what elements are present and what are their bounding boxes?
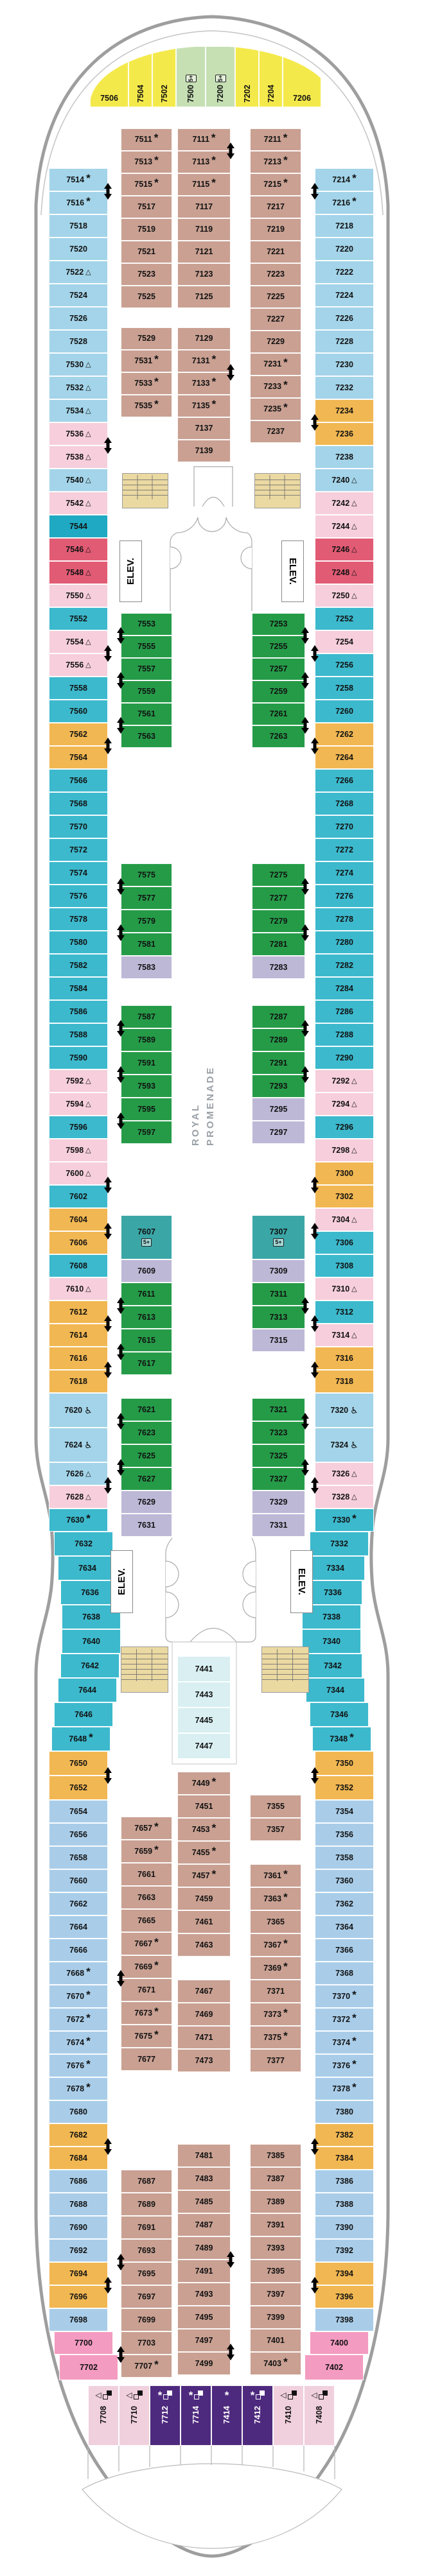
updown-arrow-icon [311, 1315, 319, 1332]
cabin-7214: 7214* [315, 168, 374, 191]
cabin-number: 7294 [331, 1100, 349, 1109]
cabin-number: 7536 [66, 430, 84, 438]
cabin-7690: 7690 [49, 2216, 108, 2239]
asterisk-icon: * [283, 402, 288, 413]
cabin-7412: *7412 [242, 2385, 273, 2446]
cabin-number: 7447 [195, 1742, 213, 1750]
updown-arrow-icon [301, 1459, 309, 1476]
cabin-7556: 7556△ [49, 653, 108, 677]
cabin-7264: 7264 [315, 746, 374, 769]
cabin-number: 7614 [69, 1331, 87, 1340]
triangle-icon: △ [85, 1170, 91, 1177]
cabin-number: 7117 [195, 203, 213, 211]
cabin-number: 7324 [330, 1441, 348, 1449]
cabin-7283: 7283 [252, 956, 305, 979]
cabin-number: 7230 [335, 361, 353, 369]
updown-arrow-icon [104, 2138, 112, 2155]
cabin-number: 7262 [335, 730, 353, 739]
cabin-7248: 7248△ [315, 561, 374, 584]
cabin-7504: 7504 [128, 46, 152, 107]
cabin-number: 7590 [69, 1054, 87, 1062]
cabin-7563: 7563 [121, 725, 172, 748]
stairs-1 [122, 473, 168, 508]
cabin-7306: 7306 [315, 1231, 374, 1254]
cabin-7397: 7397 [250, 2283, 301, 2306]
cabin-number: 7602 [69, 1193, 87, 1201]
cabin-7222: 7222 [315, 261, 374, 284]
cabin-number: 7511 [135, 135, 152, 144]
cabin-number: 7214 [332, 176, 350, 184]
cabin-7675: 7675* [121, 2025, 172, 2048]
cabin-number: 7398 [335, 2316, 353, 2324]
triangle-icon: △ [85, 569, 91, 576]
cabin-number: 7644 [78, 1686, 96, 1695]
cabin-7657: 7657* [121, 1817, 172, 1840]
cabin-7588: 7588 [49, 1023, 108, 1046]
cabin-7457: 7457* [177, 1864, 231, 1887]
cabin-7487: 7487 [177, 2213, 231, 2236]
triangle-left-icon: ◁ [280, 2391, 286, 2399]
cabin-7451: 7451 [177, 1795, 231, 1818]
cabin-number: 7497 [195, 2337, 213, 2345]
cabin-7532: 7532△ [49, 376, 108, 399]
cabin-number: 7555 [137, 643, 155, 651]
asterisk-icon: * [86, 2059, 91, 2070]
cabin-7220: 7220 [315, 238, 374, 261]
updown-arrow-icon [301, 717, 309, 734]
cabin-7348: 7348* [312, 1727, 371, 1751]
cabin-number: 7237 [267, 428, 285, 436]
stairs-4 [261, 1647, 309, 1693]
cabin-7224: 7224 [315, 284, 374, 307]
cabin-7372: 7372* [315, 2008, 374, 2031]
asterisk-icon: * [154, 399, 159, 410]
asterisk-icon: * [212, 399, 216, 410]
cabin-number: 7673 [134, 2009, 152, 2018]
cabin-7608: 7608 [49, 1254, 108, 1277]
cabin-7226: 7226 [315, 307, 374, 330]
cabin-number: 7697 [137, 2293, 155, 2301]
cabin-7669: 7669* [121, 1955, 172, 1978]
cabin-number: 7115 [192, 180, 209, 189]
cabin-number: 7517 [137, 203, 155, 211]
cabin-7544: 7544 [49, 515, 108, 538]
cabin-number: 7638 [82, 1613, 100, 1621]
cabin-icons: ◁ [280, 2390, 296, 2400]
cabin-7218: 7218 [315, 214, 374, 238]
cabin-number: 7286 [335, 1008, 353, 1016]
asterisk-icon: * [283, 2007, 288, 2018]
cabin-7595: 7595 [121, 1098, 172, 1121]
asterisk-icon: * [158, 2389, 163, 2402]
cabin-7455: 7455* [177, 1841, 231, 1864]
asterisk-icon: * [86, 1513, 91, 1524]
cabin-number: 7623 [137, 1429, 155, 1437]
cabin-7579: 7579 [121, 910, 172, 933]
cabin-7231: 7231* [250, 353, 301, 376]
cabin-7671: 7671 [121, 1978, 172, 2001]
cabin-number: 7680 [69, 2108, 87, 2116]
cabin-number: 7499 [195, 2360, 213, 2368]
triangle-icon: △ [351, 1286, 357, 1293]
cabin-7600: 7600△ [49, 1162, 108, 1185]
cabin-7327: 7327 [252, 1467, 305, 1491]
cabin-7666: 7666 [49, 1939, 108, 1962]
triangle-icon: △ [351, 1332, 357, 1339]
cabin-7572: 7572 [49, 838, 108, 861]
cabin-7310: 7310△ [315, 1277, 374, 1301]
cabin-7293: 7293 [252, 1075, 305, 1098]
cabin-7467: 7467 [177, 1980, 231, 2003]
triangle-icon: △ [85, 454, 91, 461]
updown-arrow-icon [104, 1361, 112, 1378]
cabin-number: 7629 [137, 1498, 155, 1507]
cabin-7520: 7520 [49, 238, 108, 261]
cabin-7640: 7640 [62, 1629, 121, 1654]
cabin-number: 7672 [66, 2016, 84, 2024]
wheelchair-icon: ♿ [84, 1440, 93, 1449]
asterisk-icon: * [154, 1844, 159, 1855]
cabin-number: 7652 [69, 1784, 87, 1792]
updown-arrow-icon [104, 1477, 112, 1494]
triangle-icon: △ [351, 1494, 357, 1501]
cabin-number: 7664 [69, 1923, 87, 1932]
window-squares-icon [288, 2390, 297, 2399]
cabin-number: 7326 [331, 1470, 349, 1478]
cabin-number: 7200 [216, 85, 225, 103]
cabin-7307: 73075+ [252, 1215, 305, 1259]
cabin-7366: 7366 [315, 1939, 374, 1962]
cabin-7459: 7459 [177, 1887, 231, 1910]
cabin-number: 7630 [66, 1516, 84, 1525]
triangle-icon: △ [85, 269, 91, 276]
cabin-number: 7548 [66, 569, 84, 577]
cabin-7586: 7586 [49, 1000, 108, 1023]
cabin-number: 7227 [267, 315, 285, 324]
cabin-number: 7248 [331, 569, 349, 577]
cabin-number: 7666 [69, 1946, 87, 1955]
triangle-icon: △ [351, 1101, 357, 1108]
cabin-7521: 7521 [121, 241, 172, 263]
cabin-number: 7263 [270, 732, 288, 741]
cabin-number: 7500 [186, 85, 195, 103]
cabin-number: 7493 [195, 2290, 213, 2299]
updown-arrow-icon [301, 924, 309, 941]
cabin-number: 7587 [137, 1013, 155, 1021]
cabin-number: 7449 [192, 1779, 210, 1788]
cabin-number: 7222 [335, 268, 353, 277]
asterisk-icon: * [283, 2356, 288, 2367]
cabin-7254: 7254 [315, 630, 374, 653]
asterisk-icon: * [352, 2082, 357, 2093]
cabin-7253: 7253 [252, 613, 305, 635]
cabin-7111: 7111* [177, 128, 231, 151]
cabin-number: 7615 [137, 1336, 155, 1345]
cabin-number: 7502 [160, 85, 169, 103]
cabin-7139: 7139 [177, 440, 231, 462]
cabin-7552: 7552 [49, 607, 108, 630]
asterisk-icon: * [352, 1989, 357, 2000]
updown-arrow-icon [311, 414, 319, 431]
updown-arrow-icon [227, 364, 234, 381]
cabin-7695: 7695 [121, 2262, 172, 2285]
cabin-7618: 7618 [49, 1370, 108, 1393]
cabin-7206: 7206 [283, 46, 321, 107]
cabin-number: 7211 [264, 135, 281, 144]
updown-arrow-icon [301, 672, 309, 689]
cabin-7357: 7357 [250, 1818, 301, 1841]
cabin-number: 7558 [69, 684, 87, 693]
cabin-7604: 7604 [49, 1208, 108, 1231]
cabin-7674: 7674* [49, 2031, 108, 2054]
asterisk-icon: * [283, 1869, 288, 1880]
triangle-icon: △ [85, 1147, 91, 1154]
cabin-7414: *7414 [211, 2385, 242, 2446]
cabin-number: 7259 [270, 687, 288, 696]
cabin-7590: 7590 [49, 1046, 108, 1069]
updown-arrow-icon [311, 1477, 319, 1494]
cabin-7331: 7331 [252, 1514, 305, 1537]
cabin-number: 7586 [69, 1008, 87, 1016]
cabin-7211: 7211* [250, 128, 301, 151]
cabin-7250: 7250△ [315, 584, 374, 607]
cabin-number: 7368 [335, 1969, 353, 1978]
cabin-number: 7648 [69, 1735, 87, 1743]
cabin-number: 7521 [137, 248, 155, 256]
cabin-7386: 7386 [315, 2170, 374, 2193]
cabin-7497: 7497 [177, 2329, 231, 2352]
asterisk-icon: * [352, 2059, 357, 2070]
cabin-7256: 7256 [315, 653, 374, 677]
updown-arrow-icon [104, 183, 112, 200]
cabin-number: 7123 [195, 270, 213, 279]
updown-arrow-icon [311, 1767, 319, 1784]
cabin-7591: 7591 [121, 1051, 172, 1075]
cabin-7691: 7691 [121, 2216, 172, 2239]
cabin-number: 7331 [270, 1521, 288, 1530]
cabin-7298: 7298△ [315, 1139, 374, 1162]
cabin-number: 7386 [335, 2177, 353, 2186]
cabin-7280: 7280 [315, 931, 374, 954]
updown-arrow-icon [117, 2346, 125, 2363]
cabin-number: 7236 [335, 430, 353, 438]
cabin-number: 7311 [270, 1290, 287, 1299]
cabin-number: 7524 [69, 291, 87, 300]
stairs-2 [254, 473, 301, 508]
cabin-number: 7389 [267, 2198, 285, 2206]
cabin-7515: 7515* [121, 173, 172, 196]
wheelchair-icon: ♿ [350, 1440, 358, 1449]
cabin-7596: 7596 [49, 1116, 108, 1139]
cabin-number: 7202 [243, 85, 252, 103]
cabin-number: 7327 [270, 1475, 288, 1483]
cabin-7665: 7665 [121, 1909, 172, 1932]
cabin-7529: 7529 [121, 327, 172, 350]
cabin-7308: 7308 [315, 1254, 374, 1277]
cabin-7662: 7662 [49, 1892, 108, 1915]
cabin-7296: 7296 [315, 1116, 374, 1139]
cabin-number: 7284 [335, 985, 353, 993]
cabin-number: 7690 [69, 2224, 87, 2232]
cabin-number: 7459 [195, 1895, 213, 1903]
triangle-icon: △ [85, 1471, 91, 1478]
cabin-number: 7291 [270, 1059, 288, 1068]
updown-arrow-icon [104, 1315, 112, 1332]
triangle-left-icon: ◁ [126, 2391, 132, 2399]
cabin-number: 7532 [66, 384, 84, 392]
cabin-number: 7399 [267, 2313, 285, 2322]
window-squares-icon [194, 2390, 203, 2399]
cabin-7328: 7328△ [315, 1485, 374, 1508]
cabin-number: 7356 [335, 1831, 353, 1839]
asterisk-icon: * [154, 177, 159, 188]
cabin-number: 7226 [335, 315, 353, 323]
cabin-7344: 7344 [306, 1678, 365, 1702]
cabin-7659: 7659* [121, 1840, 172, 1863]
cabin-7302: 7302 [315, 1185, 374, 1208]
cabin-7582: 7582 [49, 954, 108, 977]
cabin-number: 7495 [195, 2313, 213, 2322]
cabin-number: 7559 [137, 687, 155, 696]
triangle-icon: △ [351, 523, 357, 530]
cabin-7346: 7346 [310, 1702, 369, 1727]
triangle-icon: △ [85, 639, 91, 646]
cabin-7356: 7356 [315, 1823, 374, 1846]
cabin-number: 7696 [69, 2293, 87, 2301]
cabin-number: 7218 [335, 222, 353, 230]
updown-arrow-icon [117, 1459, 125, 1476]
cabin-number: 7687 [137, 2177, 155, 2186]
cabin-number: 7364 [335, 1923, 353, 1932]
cabin-7607: 76075+ [121, 1215, 172, 1259]
cabin-number: 7309 [270, 1267, 288, 1275]
cabin-number: 7453 [192, 1826, 210, 1834]
cabin-7282: 7282 [315, 954, 374, 977]
cabin-number: 7557 [137, 665, 155, 673]
cabin-7292: 7292△ [315, 1069, 374, 1093]
asterisk-icon: * [283, 1938, 288, 1949]
cabin-7288: 7288 [315, 1023, 374, 1046]
cabin-number: 7360 [335, 1877, 353, 1885]
cabin-7584: 7584 [49, 977, 108, 1000]
cabin-7236: 7236 [315, 422, 374, 445]
cabin-number: 7554 [66, 638, 84, 646]
cabin-number: 7403 [263, 2360, 281, 2368]
cabin-number: 7455 [192, 1849, 210, 1857]
updown-arrow-icon [104, 2277, 112, 2294]
cabin-number: 7616 [69, 1354, 87, 1363]
cabin-number: 7684 [69, 2154, 87, 2163]
cabin-7234: 7234 [315, 399, 374, 422]
cabin-7664: 7664 [49, 1915, 108, 1939]
asterisk-icon: * [154, 132, 159, 143]
asterisk-icon: * [154, 376, 159, 387]
cabin-7399: 7399 [250, 2306, 301, 2329]
cabin-number: 7279 [270, 917, 288, 926]
cabin-number: 7656 [69, 1831, 87, 1839]
cabin-number: 7660 [69, 1877, 87, 1885]
cabin-7113: 7113* [177, 151, 231, 173]
cabin-number: 7328 [331, 1493, 349, 1501]
asterisk-icon: * [283, 155, 288, 166]
cabin-number: 7574 [69, 869, 87, 877]
cabin-number: 7678 [66, 2085, 84, 2093]
cabin-7550: 7550△ [49, 584, 108, 607]
cabin-7644: 7644 [58, 1678, 117, 1702]
cabin-7680: 7680 [49, 2100, 108, 2123]
cabin-7217: 7217 [250, 196, 301, 218]
cabin-number: 7668 [66, 1969, 84, 1978]
cabin-number: 7410 [284, 2406, 293, 2424]
cabin-7561: 7561 [121, 703, 172, 725]
triangle-icon: △ [85, 1078, 91, 1085]
cabin-number: 7661 [137, 1871, 155, 1879]
cabin-7289: 7289 [252, 1028, 305, 1051]
cabin-number: 7612 [69, 1308, 87, 1317]
cabin-7499: 7499 [177, 2352, 231, 2375]
cabin-7445: 7445 [177, 1707, 231, 1733]
asterisk-icon: * [251, 2389, 255, 2402]
cabin-number: 7626 [66, 1470, 84, 1478]
cabin-number: 7564 [69, 754, 87, 762]
cabin-7358: 7358 [315, 1846, 374, 1869]
triangle-icon: △ [351, 1078, 357, 1085]
cabin-number: 7607 [137, 1228, 155, 1236]
asterisk-icon: * [86, 1966, 91, 1977]
elevator-label: ELEV. [125, 558, 136, 585]
cabin-number: 7204 [267, 85, 276, 103]
cabin-7242: 7242△ [315, 492, 374, 515]
cabin-7688: 7688 [49, 2193, 108, 2216]
cabin-number: 7529 [137, 334, 155, 343]
cabin-number: 7275 [270, 871, 288, 879]
updown-arrow-icon [104, 1767, 112, 1784]
cabin-icons: ◁ [126, 2390, 142, 2400]
cabin-7368: 7368 [315, 1962, 374, 1985]
cabin-number: 7485 [195, 2198, 213, 2206]
cabin-number: 7369 [263, 1964, 281, 1973]
cabin-7518: 7518 [49, 214, 108, 238]
cabin-number: 7242 [331, 499, 349, 508]
cabin-number: 7640 [82, 1638, 100, 1646]
cabin-number: 7579 [137, 917, 155, 926]
wheelchair-icon: ♿ [84, 1406, 93, 1415]
cabin-7631: 7631 [121, 1514, 172, 1537]
cabin-7202: 7202 [235, 46, 259, 107]
cabin-number: 7232 [335, 384, 353, 392]
cabin-number: 7391 [267, 2221, 285, 2229]
cabin-number: 7400 [330, 2339, 348, 2347]
cabin-number: 7609 [137, 1267, 155, 1275]
window-front-square [103, 2394, 108, 2399]
cabin-number: 7592 [66, 1077, 84, 1085]
cabin-7578: 7578 [49, 908, 108, 931]
cabin-7449: 7449* [177, 1772, 231, 1795]
cabin-7252: 7252 [315, 607, 374, 630]
cabin-number: 7312 [335, 1308, 353, 1317]
cabin-7370: 7370* [315, 1985, 374, 2008]
updown-arrow-icon [301, 878, 309, 895]
cabin-number: 7589 [137, 1036, 155, 1044]
cabin-icons: ◁ [311, 2390, 327, 2400]
asterisk-icon: * [211, 155, 216, 166]
cabin-number: 7581 [137, 940, 155, 949]
cabin-number: 7530 [66, 361, 84, 369]
cabin-number: 7610 [66, 1285, 84, 1293]
cabin-7693: 7693 [121, 2239, 172, 2262]
cabin-7398: 7398 [315, 2308, 374, 2331]
cabin-number: 7371 [267, 1987, 285, 1996]
